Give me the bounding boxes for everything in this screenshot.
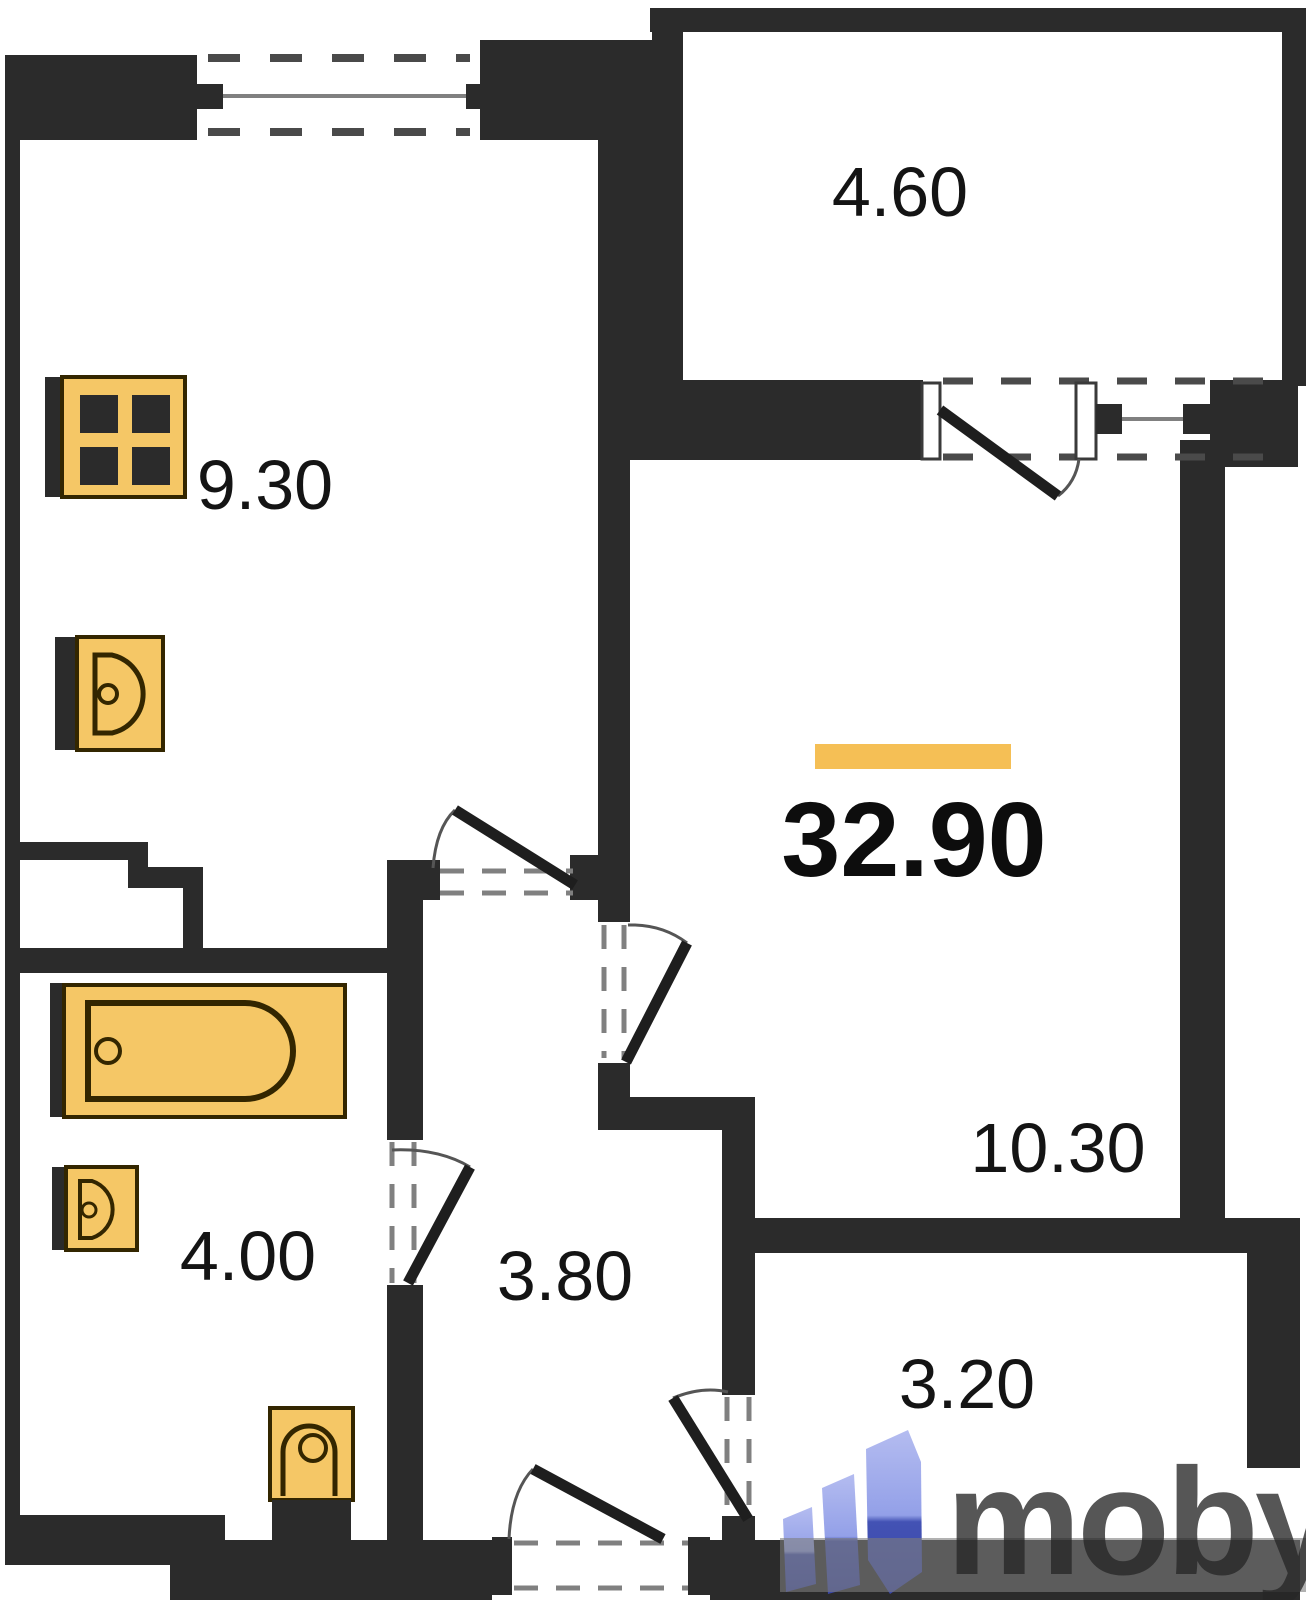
bathroom-area-label: 4.00 <box>180 1221 316 1291</box>
kitchen-door-arc <box>433 810 455 868</box>
hallway-area-label: 3.80 <box>497 1241 633 1311</box>
wall-bath-hall-top <box>387 868 423 1140</box>
bathtub-icon <box>50 983 345 1117</box>
living-room-door <box>604 925 687 1062</box>
walls <box>5 8 1306 1600</box>
living-door-leaf <box>626 943 687 1062</box>
loggia-door-arc <box>673 1390 728 1398</box>
kitchen-window <box>197 58 492 132</box>
window-jamb-right <box>466 84 492 109</box>
floorplan-drawing <box>0 0 1306 1600</box>
window-jamb-left <box>197 84 223 109</box>
kitchen-sink-icon <box>55 637 163 750</box>
wall-balcony-right <box>1282 8 1306 386</box>
wall-bathroom-top <box>20 948 400 973</box>
kitchen-door-leaf <box>455 810 575 885</box>
total-area-label: 32.90 <box>781 787 1046 893</box>
kitchen-door <box>433 810 575 893</box>
washbasin-icon <box>52 1167 137 1250</box>
balcony-bottom-area-label: 3.20 <box>899 1349 1035 1419</box>
living-door-arc <box>628 925 687 943</box>
watermark-brand-text: moby <box>946 1446 1306 1598</box>
wall-kitchen-balcony <box>598 140 683 385</box>
floorplan: 9.30 4.60 32.90 10.30 4.00 3.80 3.20 mob… <box>0 0 1306 1600</box>
entrance-door-arc <box>509 1469 533 1539</box>
wall-right-outer <box>1180 440 1225 1253</box>
wall-loggia-door-jamb-top <box>722 1355 755 1395</box>
entrance-door-leaf <box>533 1469 663 1539</box>
balcony-door-frame-right <box>1076 383 1096 459</box>
kitchen-area-label: 9.30 <box>197 450 333 520</box>
balcony-window-jamb-left <box>1096 404 1122 434</box>
wall-top-mid <box>480 40 660 140</box>
stove-icon <box>45 377 185 497</box>
wall-kitchen-living <box>598 385 630 922</box>
balcony-window-jamb-right <box>1183 404 1210 434</box>
entrance-door <box>509 1469 688 1588</box>
wall-bottom-left <box>170 1540 492 1600</box>
wall-kitchen-door-jamb-right <box>570 855 630 900</box>
total-area-highlight <box>815 744 1011 769</box>
wall-hall-living-h <box>598 1097 755 1130</box>
balcony-door-leaf <box>940 410 1058 496</box>
wall-entrance-jamb-right <box>688 1537 710 1595</box>
wall-loggia-right <box>1247 1253 1300 1468</box>
balcony-door-frame-left <box>922 383 940 459</box>
wall-living-top <box>598 380 923 460</box>
wall-balcony-top <box>650 8 1306 32</box>
bathroom-door-arc <box>392 1150 470 1167</box>
wall-niche-4 <box>183 867 203 952</box>
loggia-door-leaf <box>673 1398 748 1519</box>
balcony-door-arc <box>1058 459 1079 496</box>
wall-entrance-jamb-left <box>492 1537 512 1595</box>
balcony-top-area-label: 4.60 <box>832 157 968 227</box>
bathroom-door <box>392 1142 470 1283</box>
loggia-door <box>673 1390 749 1519</box>
toilet-icon <box>270 1408 353 1540</box>
wall-top-left <box>5 55 197 140</box>
living-room-area-label: 10.30 <box>970 1113 1145 1183</box>
wall-left-outer <box>5 55 20 1565</box>
bathroom-door-leaf <box>408 1167 470 1283</box>
